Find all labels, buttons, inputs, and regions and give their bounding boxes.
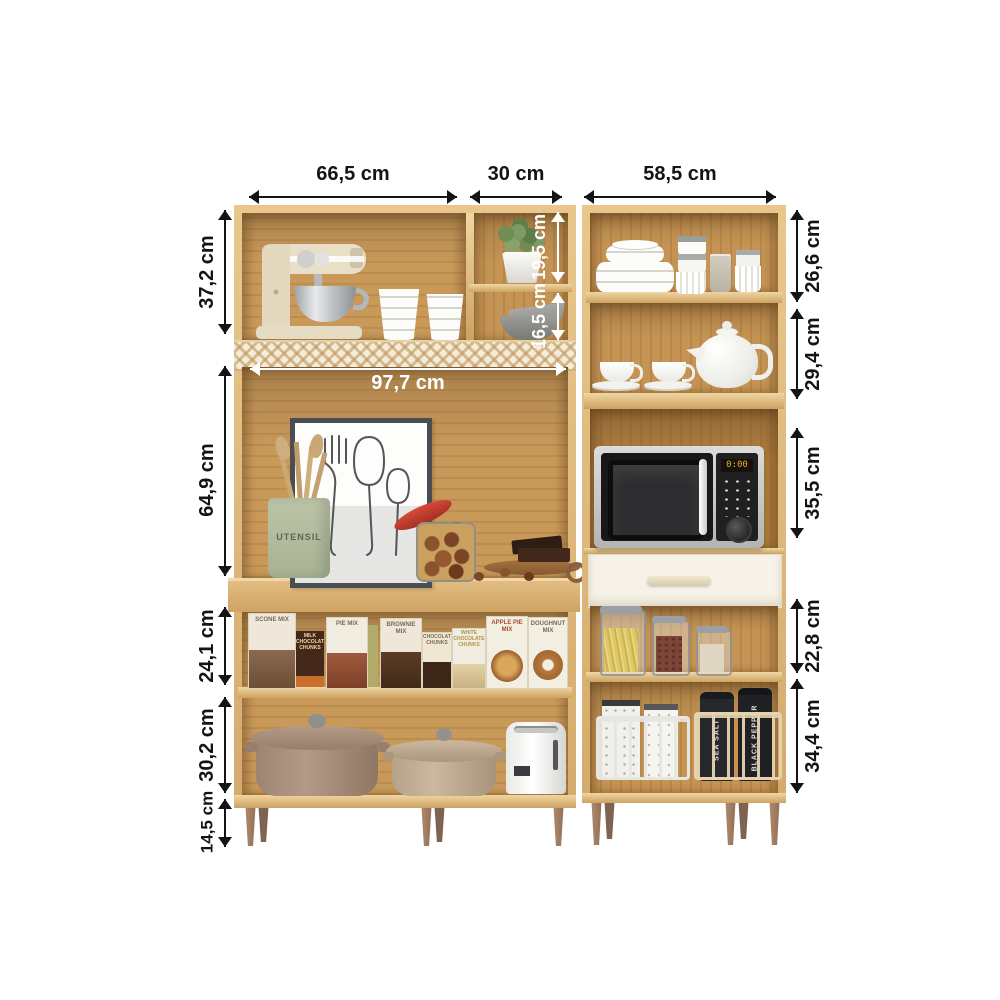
jar-contents-pasta xyxy=(604,628,638,672)
chocolate-bar xyxy=(518,548,570,562)
top-plate xyxy=(612,240,658,249)
dim-label-inner-upper-shelf: 19,5 cm xyxy=(530,214,548,280)
stand-mixer xyxy=(250,230,390,342)
teapot-knob xyxy=(722,321,732,330)
dim-label-right-4: 22,8 cm xyxy=(803,599,823,672)
box-photo xyxy=(249,650,295,688)
dim-arrow-top-center xyxy=(470,190,562,204)
dim-arrow-top-right xyxy=(584,190,776,204)
toaster-controls xyxy=(514,766,530,776)
utensil-crock-label: UTENSIL xyxy=(268,532,330,542)
toaster-lever xyxy=(553,740,558,770)
box-label: WHITE CHOCOLATE CHUNKS xyxy=(453,629,485,648)
saucer xyxy=(592,381,640,389)
box-photo xyxy=(491,650,523,682)
utensil-crock: UTENSIL xyxy=(268,498,330,578)
cabinet-leg xyxy=(433,808,446,842)
wire-basket-white xyxy=(596,716,690,780)
potted-plant-foliage xyxy=(498,226,514,242)
box-label: MILK CHOCOLATE CHUNKS xyxy=(296,631,324,651)
pot-lid xyxy=(250,726,384,750)
toaster xyxy=(506,722,566,794)
teapot-handle xyxy=(752,344,773,380)
toaster-slots xyxy=(514,726,558,733)
box-photo xyxy=(453,664,485,688)
dim-arrow-left-3 xyxy=(218,607,232,685)
baking-mix-box: APPLE PIE MIX xyxy=(486,616,528,689)
dim-label-top-right: 58,5 cm xyxy=(643,164,716,184)
microwave-dial xyxy=(726,517,752,543)
microwave-display: 0:00 xyxy=(721,459,753,472)
storage-jar-rice xyxy=(696,630,732,676)
box-band xyxy=(296,676,324,687)
jar-clamp-lid xyxy=(696,626,728,633)
pot-handle xyxy=(382,752,394,761)
wire-basket-tan xyxy=(694,712,782,780)
drawer-handle xyxy=(647,576,711,585)
microwave-window xyxy=(608,460,704,540)
jar-contents-beans xyxy=(656,636,682,672)
baking-mix-box xyxy=(368,625,378,687)
cabinet-leg xyxy=(257,808,270,842)
dim-label-right-2: 29,4 cm xyxy=(803,317,823,390)
bottom-board xyxy=(582,793,786,803)
microwave-handle xyxy=(699,459,707,535)
box-label: CHOCOLATE CHUNKS xyxy=(423,633,451,647)
fluted-cup xyxy=(735,266,761,292)
baking-mix-box: BROWNIE MIX xyxy=(380,618,422,689)
dim-label-left-5: 14,5 cm xyxy=(199,791,216,853)
dim-label-top-center: 30 cm xyxy=(488,164,545,184)
pot-lid xyxy=(386,740,502,762)
dim-arrow-left-5 xyxy=(218,799,232,847)
hazelnut-jar xyxy=(416,522,476,582)
baking-mix-box: MILK CHOCOLATE CHUNKS xyxy=(296,631,324,687)
dim-label-right-1: 26,6 cm xyxy=(803,219,823,292)
dim-label-left-2: 64,9 cm xyxy=(197,443,217,516)
dim-label-inner-width: 97,7 cm xyxy=(371,373,444,393)
dim-arrow-left-1 xyxy=(218,210,232,334)
dim-label-right-3: 35,5 cm xyxy=(803,446,823,519)
bottom-board xyxy=(234,795,576,808)
baking-mix-box: CHOCOLATE CHUNKS xyxy=(422,632,452,689)
dim-arrow-inner-upper-shelf xyxy=(551,212,565,282)
product-dimension-diagram: UTENSIL SCONE MIX MILK CHOCOLATE CHUNKS … xyxy=(0,0,1000,1000)
box-photo xyxy=(423,662,451,688)
jar-clamp-lid xyxy=(600,606,642,614)
box-photo xyxy=(327,653,367,688)
baking-mix-box: PIE MIX xyxy=(326,617,368,689)
vertical-divider xyxy=(466,213,474,340)
cabinet-leg xyxy=(724,803,737,845)
dim-label-left-1: 37,2 cm xyxy=(197,235,217,308)
dim-arrow-left-2 xyxy=(218,366,232,576)
dim-label-left-4: 30,2 cm xyxy=(197,708,217,781)
cabinet-leg xyxy=(603,803,616,839)
pot-handle xyxy=(494,752,506,761)
storage-jar-beans xyxy=(652,620,690,676)
saucer xyxy=(644,381,692,389)
scattered-hazelnuts xyxy=(500,568,510,577)
thick-shelf-board xyxy=(584,393,784,409)
cabinet-leg xyxy=(590,803,603,845)
cabinet-leg xyxy=(768,803,781,845)
box-label: DOUGHNUT MIX xyxy=(529,618,567,635)
storage-jar-pasta xyxy=(600,610,646,676)
dim-arrow-top-left xyxy=(249,190,457,204)
dim-arrow-inner-lower-shelf xyxy=(551,293,565,340)
box-label: BROWNIE MIX xyxy=(381,619,421,636)
jar-contents-rice xyxy=(700,644,724,672)
dim-label-top-left: 66,5 cm xyxy=(316,164,389,184)
baking-mix-box: WHITE CHOCOLATE CHUNKS xyxy=(452,628,486,689)
dim-label-right-5: 34,4 cm xyxy=(803,699,823,772)
dim-label-inner-lower-shelf: 16,5 cm xyxy=(530,283,548,349)
drinking-glass xyxy=(710,254,731,292)
jar-clamp-lid xyxy=(652,616,686,623)
teapot-body xyxy=(696,334,758,388)
box-label: PIE MIX xyxy=(327,618,367,628)
pot-knob xyxy=(308,714,326,728)
baking-mix-box: SCONE MIX xyxy=(248,613,296,689)
cabinet-leg xyxy=(420,808,433,846)
microwave-buttons xyxy=(721,477,753,517)
cabinet-leg xyxy=(552,808,565,846)
microwave: 0:00 xyxy=(594,446,764,548)
plate-stack xyxy=(596,262,674,292)
dim-arrow-left-4 xyxy=(218,697,232,793)
pot-knob xyxy=(436,728,452,741)
pot-handle xyxy=(244,742,258,752)
box-label: SCONE MIX xyxy=(249,614,295,624)
dim-label-left-3: 24,1 cm xyxy=(197,609,217,682)
cabinet-leg xyxy=(737,803,750,839)
box-photo xyxy=(533,650,563,680)
box-photo xyxy=(381,652,421,688)
box-label: APPLE PIE MIX xyxy=(487,617,527,634)
fluted-cup xyxy=(676,272,706,294)
drawer-front xyxy=(588,554,782,608)
cabinet-leg xyxy=(244,808,257,846)
baking-mix-box: DOUGHNUT MIX xyxy=(528,617,568,689)
microwave-door xyxy=(601,453,713,541)
microwave-control-panel: 0:00 xyxy=(716,453,758,541)
center-column-shelf xyxy=(469,284,572,292)
